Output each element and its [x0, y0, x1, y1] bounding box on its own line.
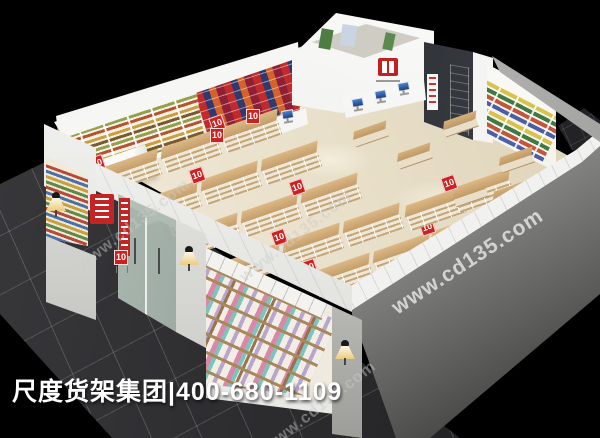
store-3d-render: 10 10 10 10 10 10 10 10 10 10 10 10 [0, 0, 600, 438]
branding-text: 尺度货架集团|400-680-1109 [12, 379, 342, 407]
promo-banner-text-lines [429, 77, 436, 107]
pos-monitor-icon [397, 81, 411, 96]
pos-monitor-icon [374, 89, 388, 104]
lamp-stem [344, 358, 346, 365]
price-sign: 10 [210, 128, 224, 143]
door-handle [158, 248, 160, 274]
door-mullion [145, 218, 147, 330]
lamp-stem [55, 210, 57, 217]
price-sign-standee: 10 [114, 250, 128, 265]
store-logo [378, 58, 398, 76]
store-logo-tagline [376, 80, 400, 82]
promo-banner [427, 74, 438, 110]
wall-lamp-icon [333, 340, 357, 366]
pos-monitor-icon [281, 109, 295, 124]
back-room-poster-blue [340, 24, 358, 47]
pos-monitor-icon [351, 97, 365, 112]
pillar-red-sign-text-lines [95, 198, 109, 220]
wall-lamp-icon [177, 246, 201, 272]
wall-lamp-icon [44, 192, 68, 218]
lamp-stem [188, 264, 190, 271]
pillar-red-sign [90, 194, 114, 224]
door-handle [134, 238, 136, 264]
price-sign: 10 [246, 109, 260, 124]
standee-legs [116, 266, 128, 273]
